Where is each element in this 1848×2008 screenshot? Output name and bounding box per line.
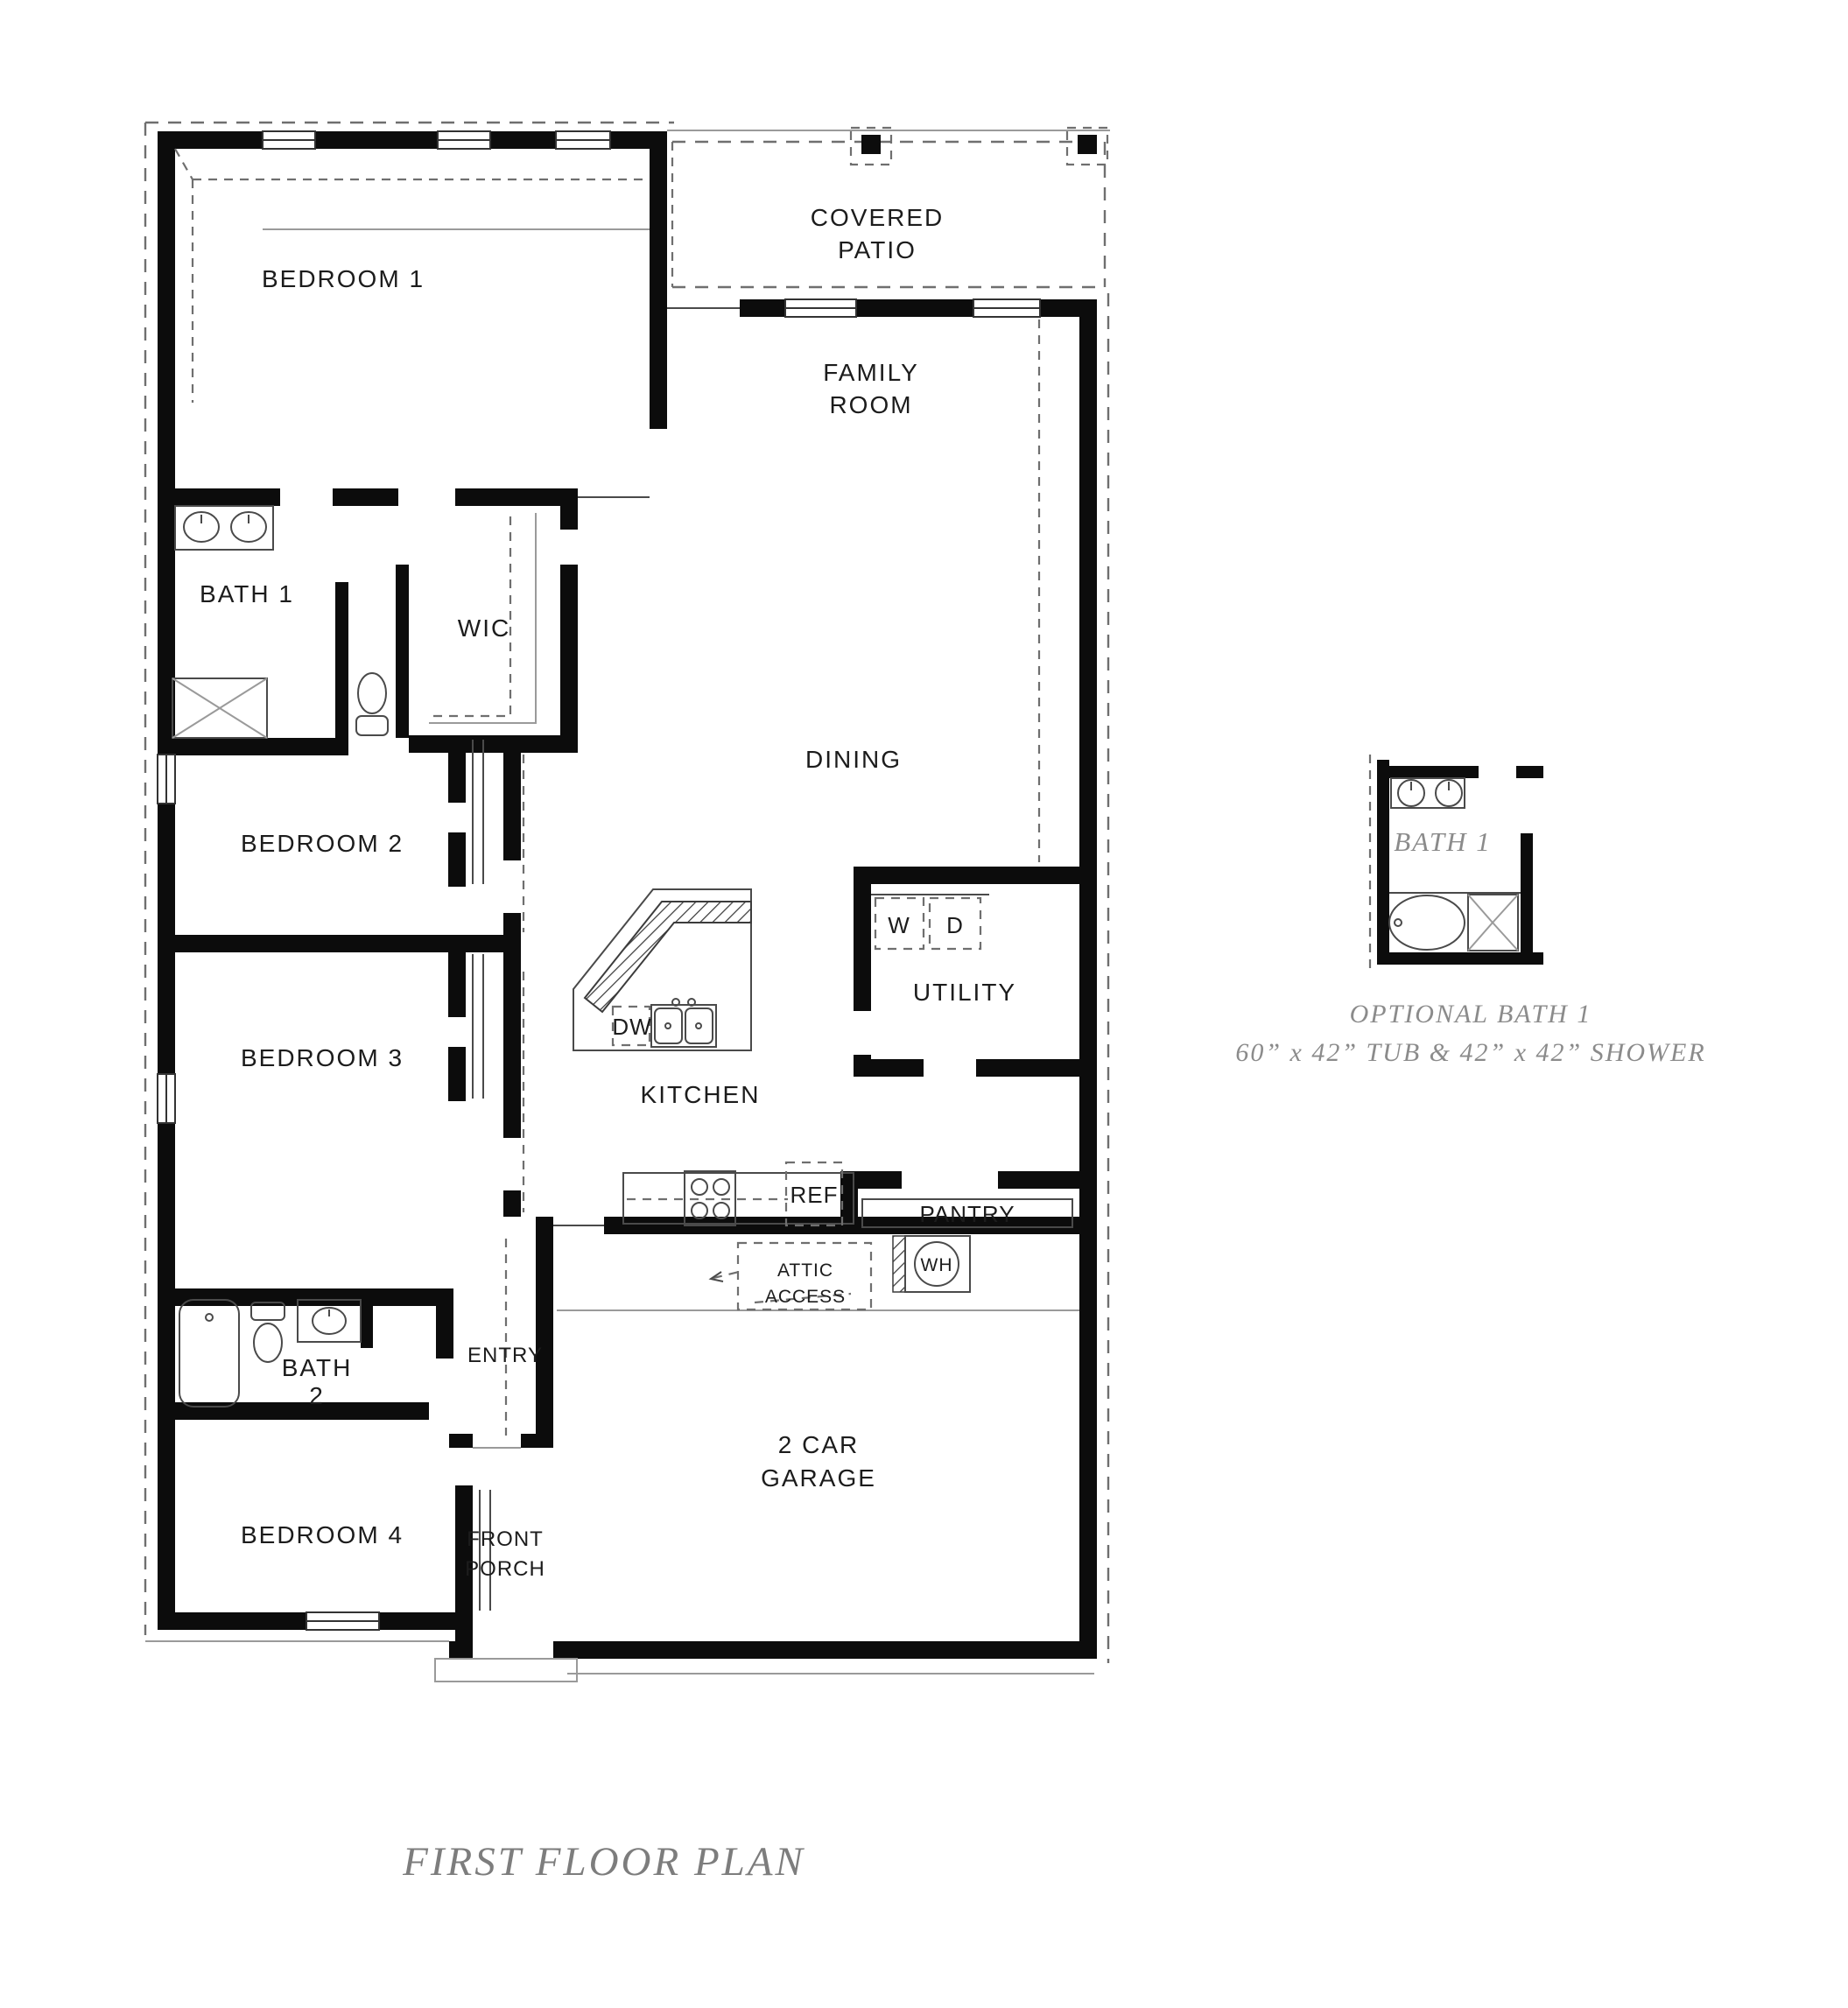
floor-plan-page: COVERED PATIO BEDROOM 1 FAMILY ROOM BATH… <box>0 0 1848 2008</box>
label-attic-access: ATTIC <box>777 1260 833 1281</box>
room-label-kitchen: KITCHEN <box>641 1081 761 1108</box>
room-label-family-room: ROOM <box>829 391 912 418</box>
shower <box>172 678 267 738</box>
appliance-label-dw: DW <box>612 1014 651 1040</box>
inset-double-sink <box>1391 778 1465 808</box>
window <box>973 299 1040 317</box>
inset-caption: OPTIONAL BATH 1 <box>1350 1000 1592 1029</box>
kitchen-sink <box>651 999 716 1047</box>
room-label-covered-patio: COVERED <box>811 204 944 231</box>
sink-vanity <box>298 1300 361 1342</box>
room-label-bath-1: BATH 1 <box>200 580 294 607</box>
optional-bath-inset <box>1370 755 1543 970</box>
label-attic-access: ACCESS <box>765 1287 846 1307</box>
room-label-front-porch: FRONT <box>467 1527 544 1551</box>
room-label-bedroom-1: BEDROOM 1 <box>262 265 425 292</box>
patio-column <box>861 135 881 154</box>
double-sink-vanity <box>175 506 273 550</box>
roof-overhang-lines <box>145 123 1108 1663</box>
plan-title: FIRST FLOOR PLAN <box>402 1839 805 1885</box>
inset-room-label: BATH 1 <box>1394 826 1492 857</box>
window <box>158 1074 175 1123</box>
ceiling-lines <box>175 149 1039 1436</box>
room-label-front-porch: PORCH <box>465 1557 545 1581</box>
kitchen-fixtures <box>573 889 854 1225</box>
room-label-bedroom-4: BEDROOM 4 <box>241 1521 404 1548</box>
room-label-pantry: PANTRY <box>919 1201 1015 1227</box>
bath2-fixtures <box>179 1300 361 1407</box>
inset-dimensions: 60” x 42” TUB & 42” x 42” SHOWER <box>1235 1038 1705 1067</box>
appliance-label-dryer: D <box>946 912 964 938</box>
room-label-bath-2: BATH <box>282 1354 353 1381</box>
toilet <box>251 1302 285 1362</box>
appliance-label-washer: W <box>888 912 910 938</box>
window <box>306 1612 379 1630</box>
room-label-bedroom-2: BEDROOM 2 <box>241 830 404 857</box>
window <box>263 131 315 149</box>
room-labels: COVERED PATIO BEDROOM 1 FAMILY ROOM BATH… <box>200 204 1016 1581</box>
appliance-label-wh: WH <box>921 1255 953 1275</box>
room-label-garage: 2 CAR <box>778 1431 859 1458</box>
room-label-family-room: FAMILY <box>823 359 919 386</box>
window <box>556 131 610 149</box>
room-label-garage: GARAGE <box>761 1464 876 1492</box>
kitchen-island <box>573 889 751 1050</box>
window <box>785 299 856 317</box>
toilet <box>356 673 388 735</box>
inset-tub <box>1389 895 1465 950</box>
bathtub <box>179 1300 239 1407</box>
floor-plan-drawing: COVERED PATIO BEDROOM 1 FAMILY ROOM BATH… <box>0 0 1848 2008</box>
appliance-label-ref: REF <box>790 1182 839 1208</box>
bath1-fixtures <box>172 506 388 738</box>
inset-shower <box>1468 895 1518 951</box>
room-label-dining: DINING <box>805 746 902 773</box>
closet-rods <box>473 740 490 1611</box>
patio-column <box>1078 135 1097 154</box>
room-label-bath-2: 2 <box>309 1382 325 1409</box>
room-label-bedroom-3: BEDROOM 3 <box>241 1044 404 1071</box>
utility-fixtures <box>711 895 1072 1309</box>
room-label-wic: WIC <box>458 614 510 642</box>
room-label-entry: ENTRY <box>467 1344 543 1367</box>
window <box>438 131 490 149</box>
window <box>158 755 175 804</box>
room-label-covered-patio: PATIO <box>838 236 917 263</box>
room-label-utility: UTILITY <box>913 979 1016 1006</box>
